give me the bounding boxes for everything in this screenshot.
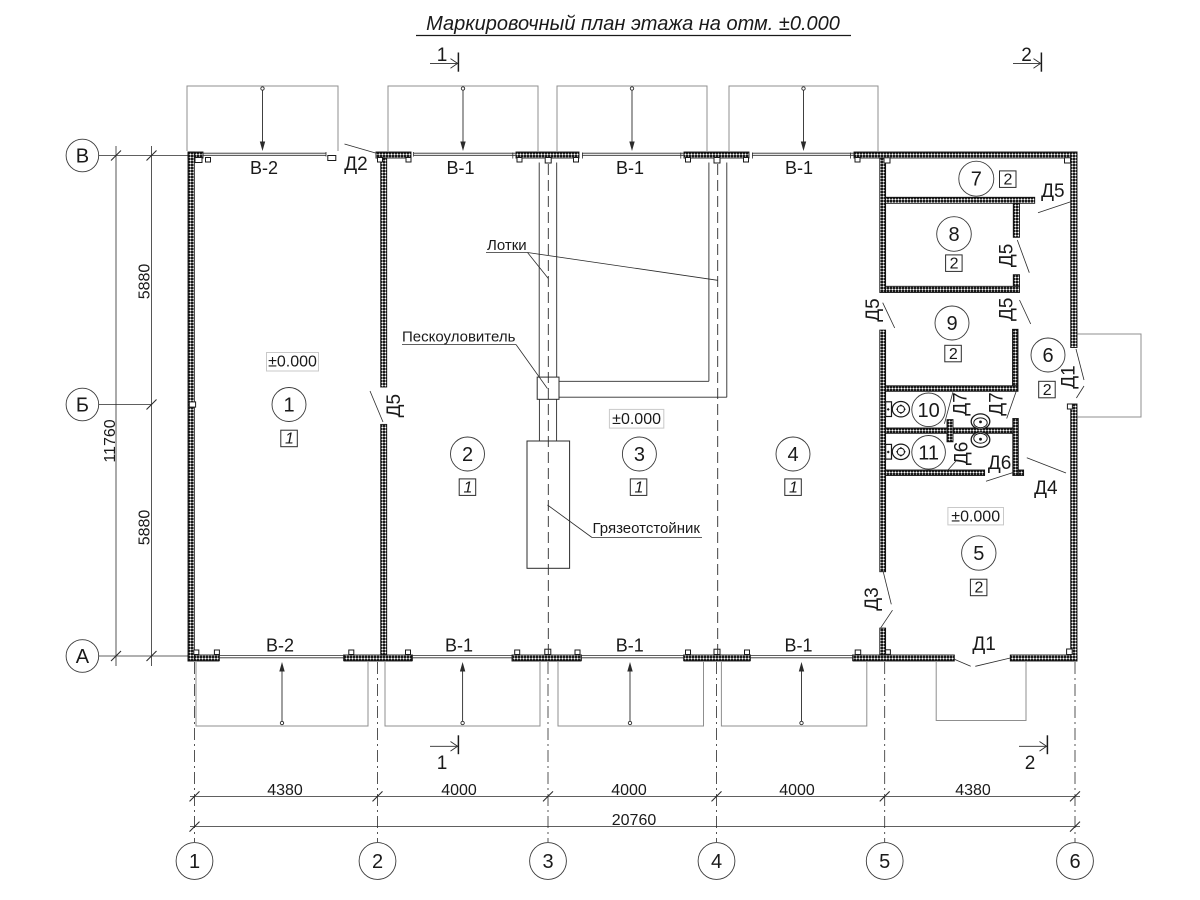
svg-text:Д6: Д6 bbox=[988, 453, 1011, 474]
svg-text:1: 1 bbox=[189, 851, 200, 873]
svg-text:В-1: В-1 bbox=[446, 158, 474, 178]
svg-text:5880: 5880 bbox=[137, 510, 154, 546]
svg-text:1: 1 bbox=[463, 479, 472, 496]
svg-text:В-1: В-1 bbox=[616, 636, 644, 656]
svg-text:В-2: В-2 bbox=[250, 158, 278, 178]
svg-text:2: 2 bbox=[1043, 382, 1052, 399]
svg-text:2: 2 bbox=[372, 851, 383, 873]
svg-text:6: 6 bbox=[1069, 851, 1080, 873]
svg-text:4: 4 bbox=[711, 851, 722, 873]
svg-text:А: А bbox=[76, 646, 90, 668]
svg-text:Д5: Д5 bbox=[863, 298, 884, 321]
svg-text:4: 4 bbox=[787, 444, 798, 466]
svg-text:4000: 4000 bbox=[441, 782, 477, 799]
svg-text:4000: 4000 bbox=[611, 782, 647, 799]
svg-text:6: 6 bbox=[1042, 345, 1053, 367]
svg-text:В-1: В-1 bbox=[616, 158, 644, 178]
svg-text:7: 7 bbox=[971, 169, 982, 191]
svg-text:В: В bbox=[76, 146, 89, 168]
svg-text:4380: 4380 bbox=[955, 782, 991, 799]
svg-text:4380: 4380 bbox=[267, 782, 303, 799]
svg-text:Д4: Д4 bbox=[1034, 478, 1058, 499]
svg-text:Д3: Д3 bbox=[862, 587, 883, 610]
svg-text:5: 5 bbox=[879, 851, 890, 873]
svg-text:5880: 5880 bbox=[137, 264, 154, 300]
svg-text:2: 2 bbox=[462, 444, 473, 466]
svg-text:11: 11 bbox=[918, 442, 939, 464]
svg-text:20760: 20760 bbox=[612, 812, 657, 829]
svg-text:Б: Б bbox=[76, 395, 89, 417]
svg-text:В-1: В-1 bbox=[445, 636, 473, 656]
svg-text:2: 2 bbox=[1025, 753, 1036, 774]
svg-text:Д7: Д7 bbox=[951, 392, 972, 415]
svg-text:Д7: Д7 bbox=[986, 392, 1007, 415]
svg-text:1: 1 bbox=[789, 479, 798, 496]
svg-text:В-1: В-1 bbox=[785, 158, 813, 178]
svg-text:1: 1 bbox=[283, 395, 294, 417]
svg-text:±0.000: ±0.000 bbox=[612, 411, 661, 428]
svg-text:Д2: Д2 bbox=[344, 154, 367, 175]
svg-text:Грязеотстойник: Грязеотстойник bbox=[593, 520, 701, 537]
svg-text:Д5: Д5 bbox=[1041, 181, 1064, 202]
svg-text:1: 1 bbox=[437, 753, 448, 774]
svg-text:2: 2 bbox=[1021, 45, 1032, 66]
svg-text:10: 10 bbox=[917, 400, 939, 422]
svg-text:2: 2 bbox=[949, 346, 958, 363]
svg-text:2: 2 bbox=[950, 255, 959, 272]
svg-text:Лотки: Лотки bbox=[487, 237, 527, 254]
svg-text:±0.000: ±0.000 bbox=[951, 508, 1000, 525]
svg-text:1: 1 bbox=[635, 479, 644, 496]
svg-text:11760: 11760 bbox=[102, 419, 119, 462]
svg-text:1: 1 bbox=[285, 431, 294, 448]
svg-text:Д5: Д5 bbox=[384, 394, 405, 417]
svg-text:2: 2 bbox=[974, 580, 983, 597]
svg-text:Д1: Д1 bbox=[1059, 365, 1080, 388]
svg-text:Маркировочный план этажа на от: Маркировочный план этажа на отм. ±0.000 bbox=[426, 13, 840, 35]
svg-text:4000: 4000 bbox=[779, 782, 815, 799]
svg-text:Пескоуловитель: Пескоуловитель bbox=[402, 329, 516, 346]
svg-text:±0.000: ±0.000 bbox=[268, 354, 317, 371]
svg-text:9: 9 bbox=[946, 313, 957, 335]
svg-text:2: 2 bbox=[1004, 171, 1013, 188]
svg-text:5: 5 bbox=[973, 543, 984, 565]
svg-text:3: 3 bbox=[634, 444, 645, 466]
svg-text:В-2: В-2 bbox=[266, 636, 294, 656]
svg-text:Д1: Д1 bbox=[972, 634, 995, 655]
svg-text:3: 3 bbox=[542, 851, 553, 873]
svg-text:Д6: Д6 bbox=[951, 442, 972, 465]
svg-text:Д5: Д5 bbox=[997, 244, 1018, 267]
svg-text:1: 1 bbox=[437, 45, 448, 66]
svg-text:Д5: Д5 bbox=[997, 298, 1018, 321]
svg-text:В-1: В-1 bbox=[784, 636, 812, 656]
svg-text:8: 8 bbox=[948, 224, 959, 246]
